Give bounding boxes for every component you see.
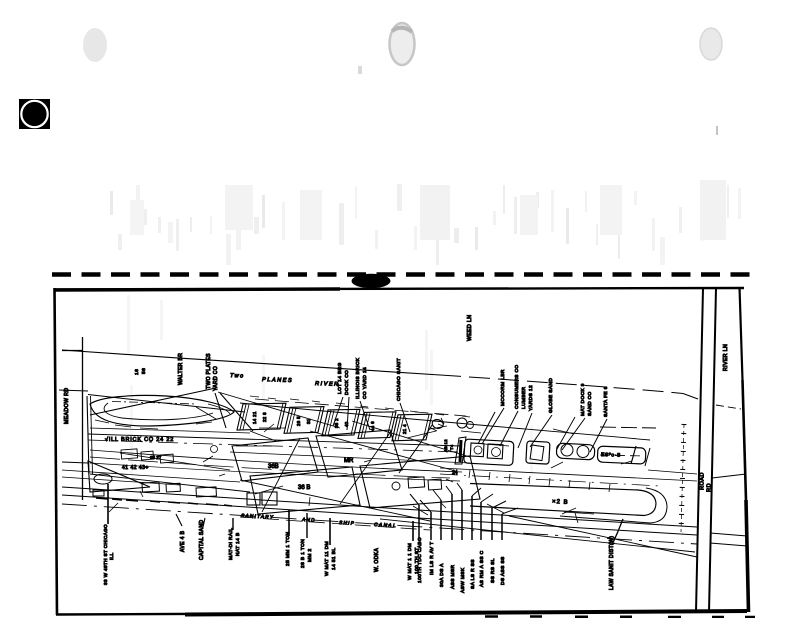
svg-text:35 2: 35 2: [334, 418, 339, 428]
svg-text:100TH TDC CABO: 100TH TDC CABO: [417, 537, 423, 583]
svg-text:ILL: ILL: [109, 552, 114, 560]
svg-text:PLANES: PLANES: [262, 377, 293, 384]
svg-text:AND: AND: [301, 517, 316, 524]
svg-text:26 5: 26 5: [296, 416, 301, 426]
svg-text:56: 56: [141, 368, 147, 374]
svg-text:NAT 14 B: NAT 14 B: [235, 532, 241, 556]
svg-text:CAPITAL SAND: CAPITAL SAND: [199, 520, 205, 560]
svg-text:44 6: 44 6: [370, 421, 375, 431]
svg-text:YARD CO: YARD CO: [213, 366, 219, 391]
svg-text:22 8: 22 8: [262, 412, 267, 422]
svg-text:14 21: 14 21: [252, 411, 257, 424]
svg-text:SA LS R SS: SA LS R SS: [470, 559, 476, 589]
svg-text:LUMBER: LUMBER: [521, 386, 527, 409]
svg-text:IM LS R AV T: IM LS R AV T: [429, 542, 435, 575]
svg-text:T4: T4: [449, 444, 454, 450]
svg-text:TWO PLATES: TWO PLATES: [206, 353, 212, 389]
svg-text:MM 2: MM 2: [307, 548, 313, 562]
svg-text:LOT 14 BRG: LOT 14 BRG: [337, 362, 343, 394]
svg-text:GLOBE SAND: GLOBE SAND: [548, 378, 554, 413]
svg-text:RD: RD: [707, 483, 713, 492]
svg-text:YARDS 12: YARDS 12: [528, 385, 534, 411]
svg-text:MR: MR: [344, 458, 354, 464]
svg-text:SAND CO: SAND CO: [587, 391, 593, 416]
svg-text:WALTER BR: WALTER BR: [178, 353, 184, 385]
svg-text:ILLINOIS BRICK: ILLINOIS BRICK: [355, 357, 361, 399]
svg-text:33 W 49TH ST CHICAGO: 33 W 49TH ST CHICAGO: [103, 524, 108, 585]
svg-text:SS RS SL: SS RS SL: [490, 558, 496, 583]
svg-text:W MAT 11 DM: W MAT 11 DM: [324, 541, 330, 576]
svg-text:14 51 BL: 14 51 BL: [331, 548, 337, 570]
svg-text:ASS MSR: ASS MSR: [450, 564, 456, 589]
svg-text:RIVER LN: RIVER LN: [723, 344, 729, 371]
svg-text:ROAD: ROAD: [700, 472, 706, 490]
svg-text:MAT DOCK 9: MAT DOCK 9: [580, 383, 586, 416]
svg-text:SANTA FE 8: SANTA FE 8: [603, 386, 609, 417]
svg-text:W. ODKA: W. ODKA: [374, 548, 380, 572]
svg-text:×2 B: ×2 B: [552, 499, 569, 506]
svg-text:AS RM A SS C: AS RM A SS C: [479, 550, 485, 587]
svg-text:CO YARD 14: CO YARD 14: [362, 367, 368, 399]
svg-text:30A DS A: 30A DS A: [439, 563, 445, 587]
svg-text:16: 16: [134, 369, 140, 375]
svg-text:SHIP: SHIP: [339, 520, 355, 527]
svg-text:ASW MSK: ASW MSK: [460, 567, 466, 593]
svg-text:25 MM 1 TON: 25 MM 1 TON: [285, 532, 291, 566]
svg-text:DS ASS SS: DS ASS SS: [500, 556, 506, 585]
svg-text:W MAT 1 1 DM: W MAT 1 1 DM: [407, 543, 413, 580]
svg-text:MEADOW RD: MEADOW RD: [64, 388, 70, 424]
svg-text:28 B 1 TON: 28 B 1 TON: [300, 539, 306, 568]
svg-text:CHICAGO SANIT: CHICAGO SANIT: [396, 358, 402, 401]
svg-text:40: 40: [344, 421, 349, 427]
svg-text:WEED LN: WEED LN: [467, 315, 473, 341]
svg-text:21 4: 21 4: [402, 424, 407, 434]
svg-text:Two: Two: [230, 373, 245, 380]
svg-text:MAT-DI RAIL: MAT-DI RAIL: [228, 528, 234, 560]
svg-text:36 B: 36 B: [298, 485, 310, 491]
svg-text:AVE 4 B: AVE 4 B: [180, 530, 186, 552]
svg-text:CANAL: CANAL: [374, 522, 397, 529]
svg-text:DOCK CO: DOCK CO: [344, 370, 350, 395]
svg-text:31: 31: [306, 418, 311, 424]
svg-text:RIVER: RIVER: [315, 381, 340, 388]
svg-text:CONSUMERS CO: CONSUMERS CO: [514, 364, 520, 409]
svg-text:MCCORM LBR: MCCORM LBR: [500, 369, 506, 406]
